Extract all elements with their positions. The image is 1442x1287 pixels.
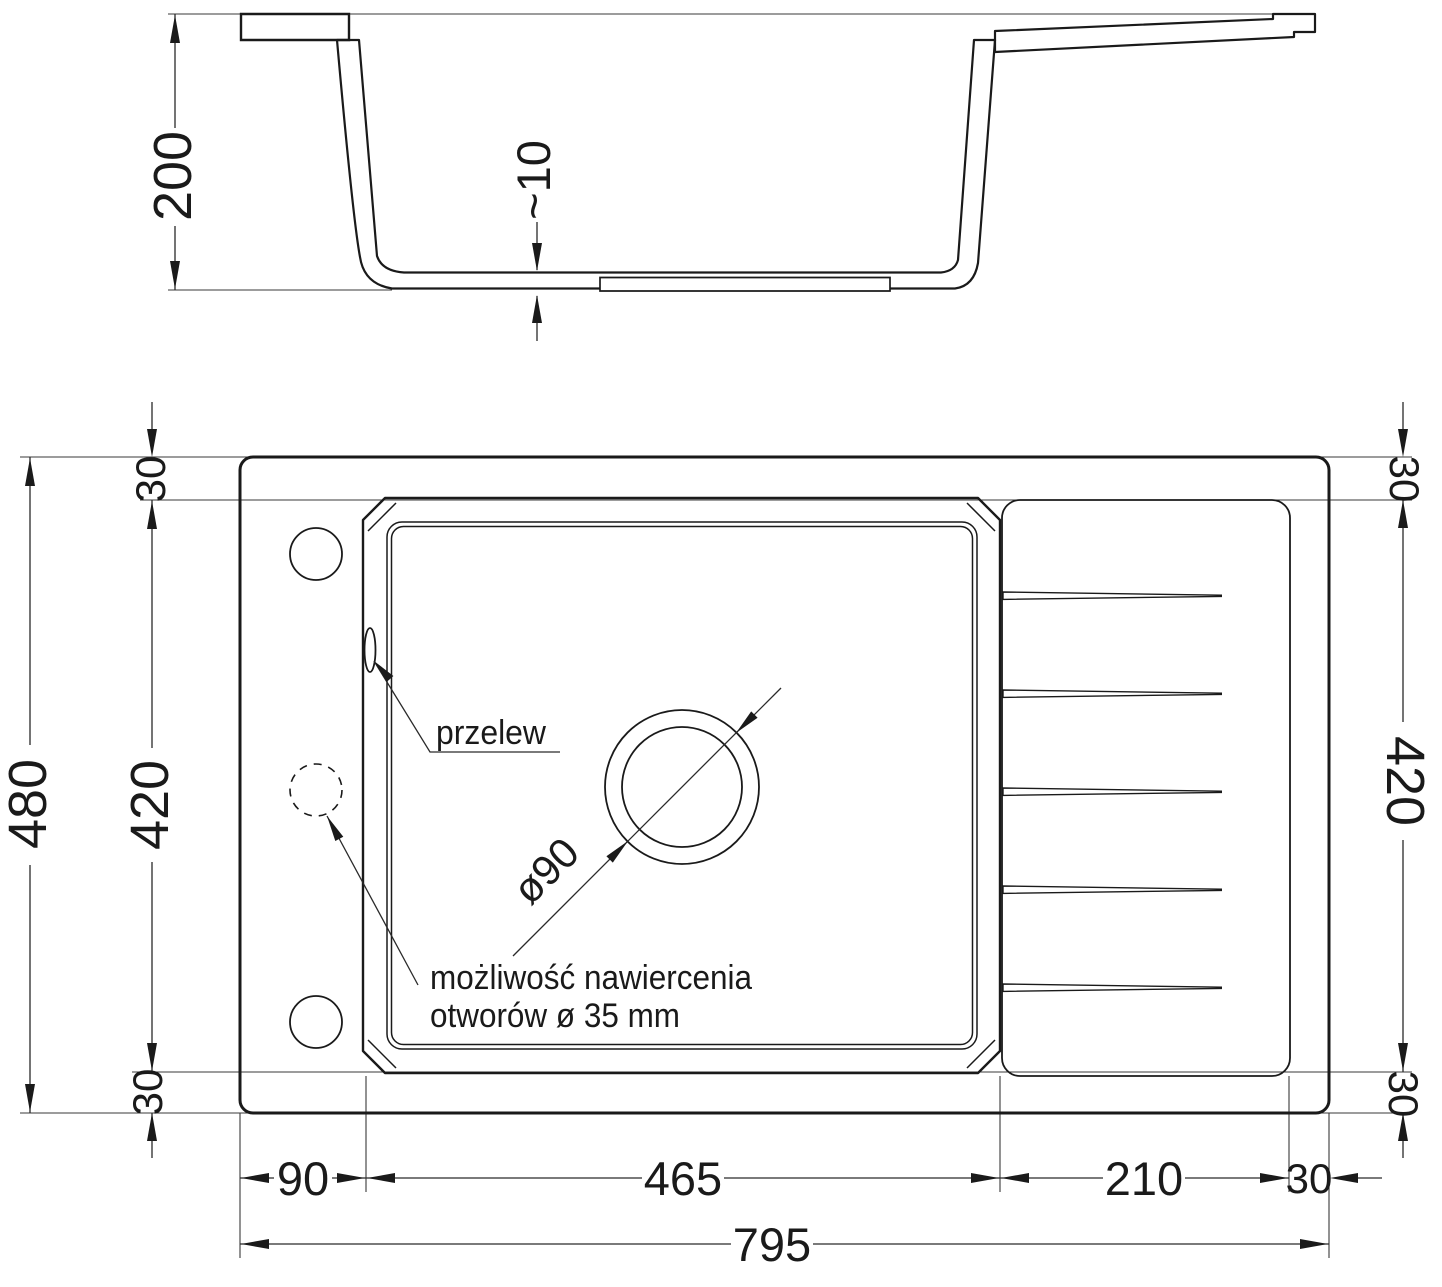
dim-420-right-arrow-down [1398, 1043, 1408, 1071]
dim-height-total: 480 [0, 759, 58, 849]
dim-section-depth: 200 [143, 131, 203, 221]
dim-height-bowl-right: 420 [1375, 736, 1435, 826]
dim-480-arrow-down [25, 1084, 35, 1112]
dim-drain-arrow-upper [736, 711, 758, 733]
dim-795-arrow-left [241, 1239, 269, 1249]
dim-480-arrow-up [25, 458, 35, 486]
label-drill-note-line1: możliwość nawiercenia [430, 959, 752, 997]
bowl-corner-chamfer-bottom-right [967, 1040, 995, 1068]
dim-465-arrow-left [367, 1173, 395, 1183]
dim-30-right-arrow [1330, 1173, 1358, 1183]
technical-drawing-sink: 200 ~10 [0, 0, 1442, 1287]
section-left-rim [241, 14, 349, 40]
dim-90-arrow-left [241, 1173, 269, 1183]
dim-30-top-left-arrow-down [147, 429, 157, 457]
dim-drain-diameter: ø90 [504, 829, 588, 913]
dim-drainer-width: 210 [1105, 1152, 1183, 1205]
drainer-groove-3 [1003, 788, 1222, 795]
section-drain-recess [600, 278, 890, 292]
plan-view: ø90 przelew możliwość nawiercenia otworó… [20, 457, 1412, 1258]
dim-420-left-arrow-up [147, 501, 157, 529]
dim-90-arrow-right [337, 1173, 365, 1183]
drainer-groove-2 [1003, 690, 1222, 697]
dimensions: 480 420 30 30 30 420 30 90 [0, 402, 1435, 1271]
overflow-slot [365, 628, 376, 672]
overflow-leader-arrow [374, 661, 393, 682]
dim-margin-top-right: 30 [1381, 456, 1428, 503]
dim-bowl-width: 465 [644, 1152, 722, 1205]
faucet-hole-top [290, 528, 342, 580]
dim-210-arrow-right [1260, 1173, 1288, 1183]
dim-795-arrow-right [1300, 1239, 1328, 1249]
dim-margin-bottom-left: 30 [124, 1069, 171, 1116]
bowl-corner-chamfer-top-right [967, 503, 995, 531]
drill-note-leader-line [327, 816, 418, 985]
drainer-groove-4 [1003, 886, 1222, 893]
dim-height-bowl-left: 420 [120, 760, 180, 850]
faucet-hole-bottom [290, 996, 342, 1048]
dim-10-arrow-up [532, 295, 542, 323]
dim-offset-left: 90 [277, 1152, 329, 1205]
dim-465-arrow-right [971, 1173, 999, 1183]
dim-width-total: 795 [733, 1218, 811, 1271]
faucet-hole-optional-dashed [290, 764, 342, 816]
dim-drain-arrow-lower [606, 841, 628, 863]
dim-margin-top-left: 30 [127, 456, 174, 503]
dim-30-top-right-arrow-down [1398, 429, 1408, 457]
dim-200-arrow-down [170, 261, 180, 289]
dim-200-arrow-up [170, 15, 180, 43]
dim-10-arrow-down [532, 243, 542, 271]
dim-30-top-right-arrow-up [1398, 500, 1408, 528]
sink-outer-edge [240, 457, 1329, 1113]
label-drill-note-line2: otworów ø 35 mm [430, 997, 680, 1035]
dim-420-left-arrow-down [147, 1043, 157, 1071]
drill-note-leader-arrow [327, 816, 343, 841]
dim-margin-right: 30 [1286, 1155, 1333, 1202]
section-drainboard [995, 14, 1315, 52]
dim-section-bottom-thickness: ~10 [507, 140, 560, 220]
dim-30-bottom-left-arrow-up [147, 1113, 157, 1141]
dim-margin-bottom-right: 30 [1380, 1071, 1427, 1118]
section-bowl-shell [337, 40, 995, 289]
drainer-groove-1 [1003, 592, 1222, 599]
section-view: 200 ~10 [143, 14, 1315, 341]
label-overflow: przelew [436, 714, 546, 752]
drainer-groove-5 [1003, 984, 1222, 991]
dim-210-arrow-left [1001, 1173, 1029, 1183]
